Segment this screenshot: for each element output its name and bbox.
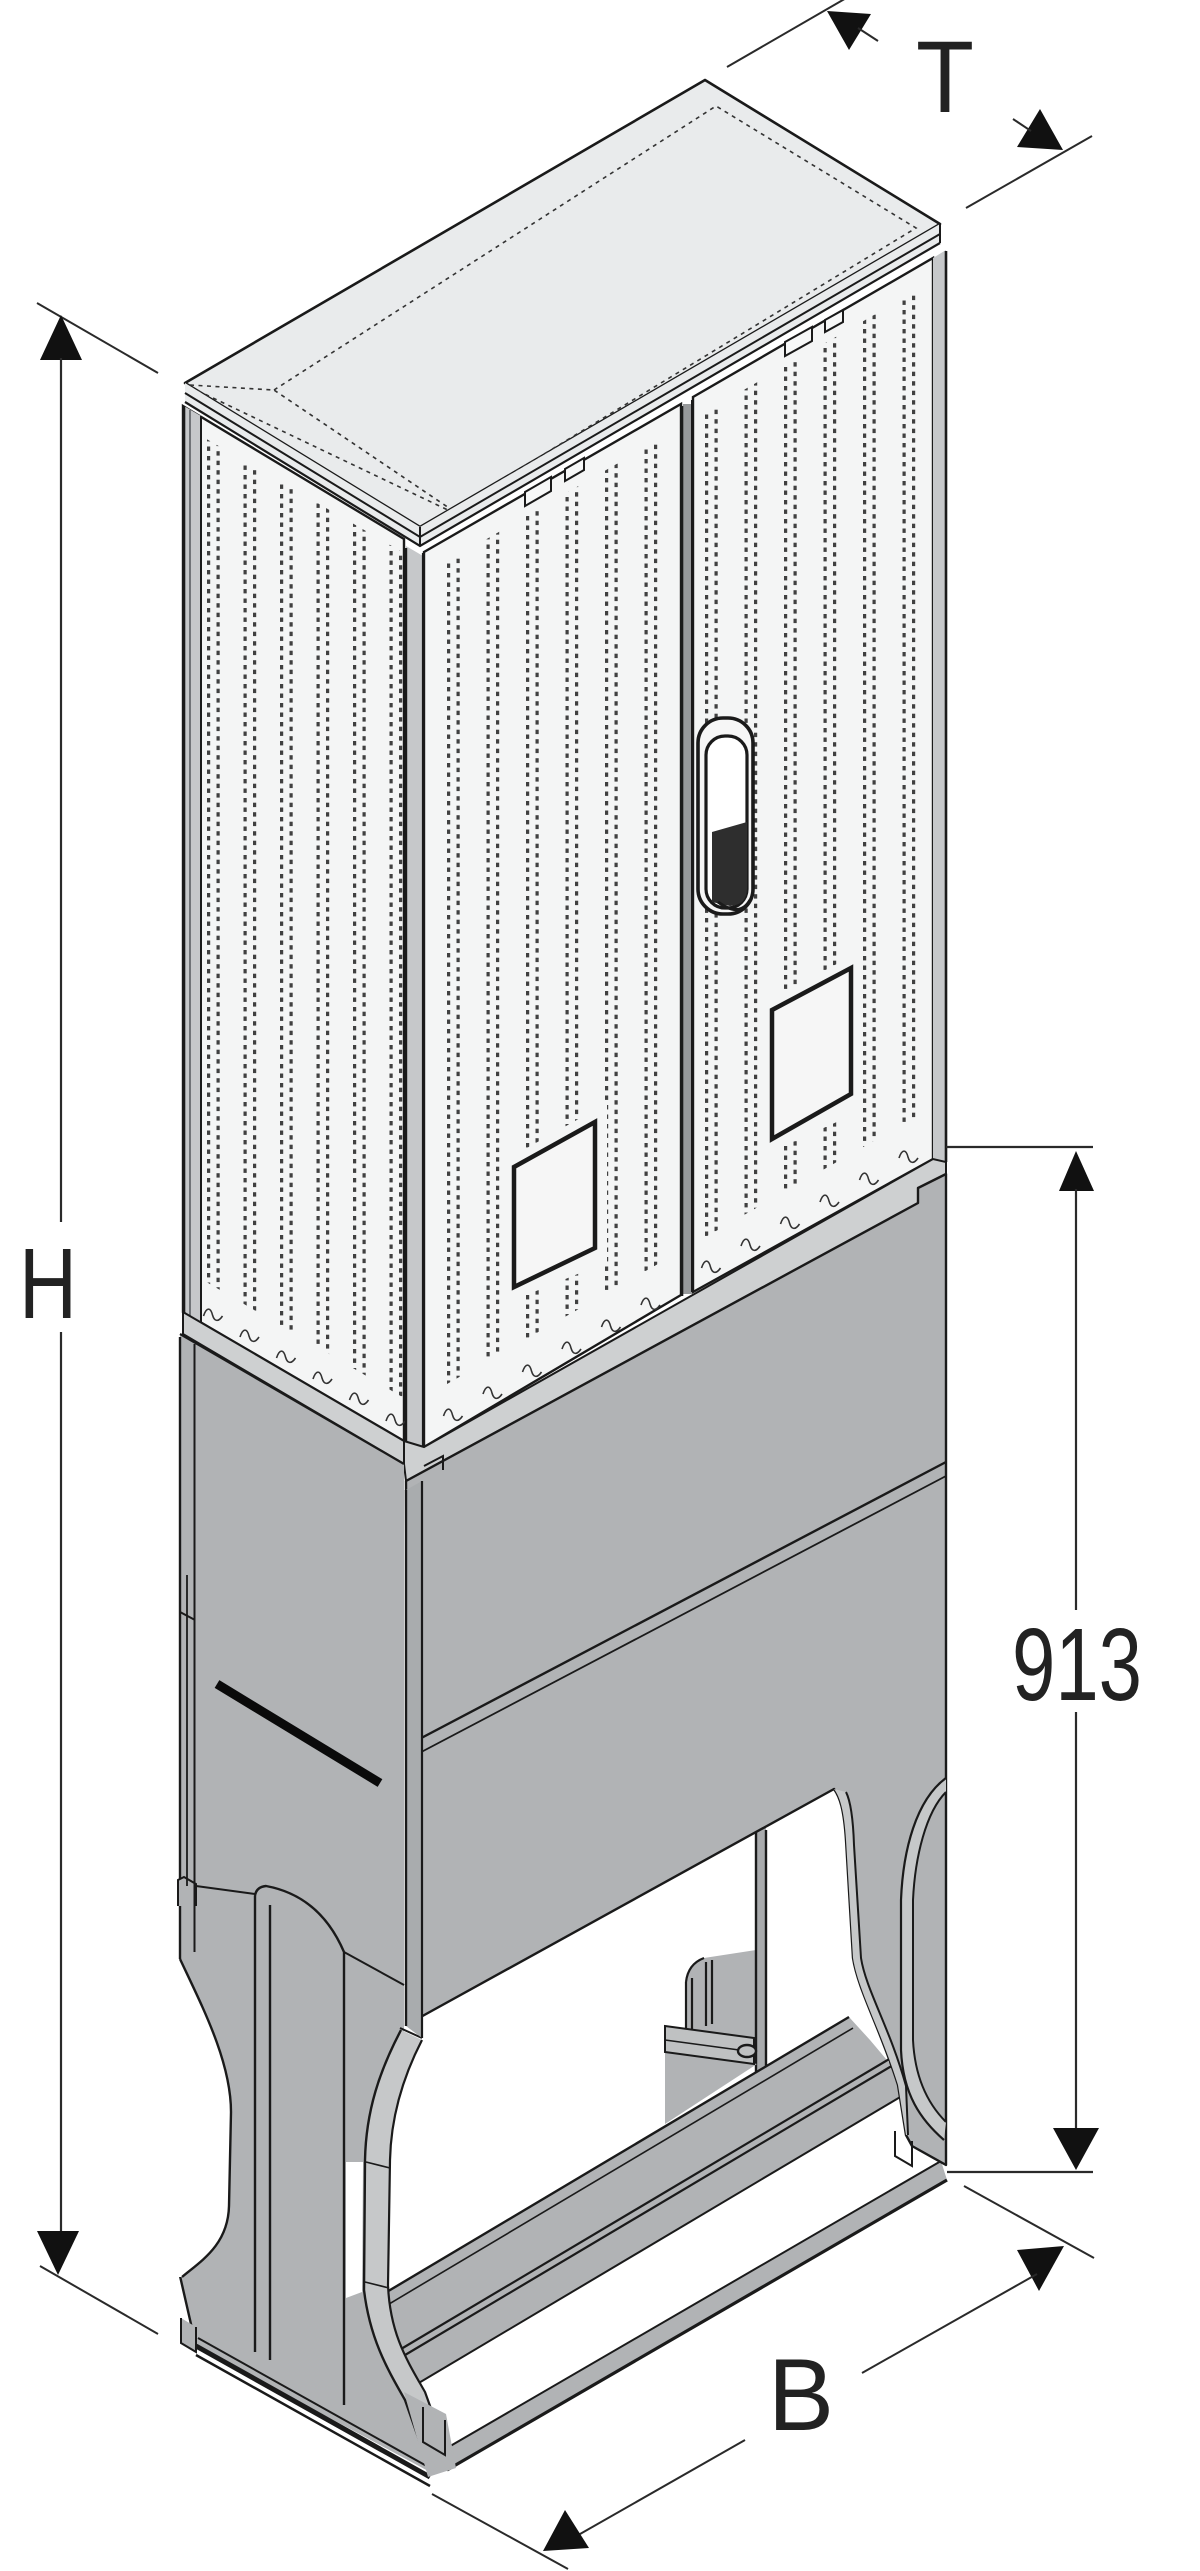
svg-text:B: B [768, 2338, 834, 2452]
svg-text:T: T [916, 20, 974, 134]
svg-text:913: 913 [1012, 1607, 1142, 1722]
svg-text:H: H [19, 1228, 77, 1340]
